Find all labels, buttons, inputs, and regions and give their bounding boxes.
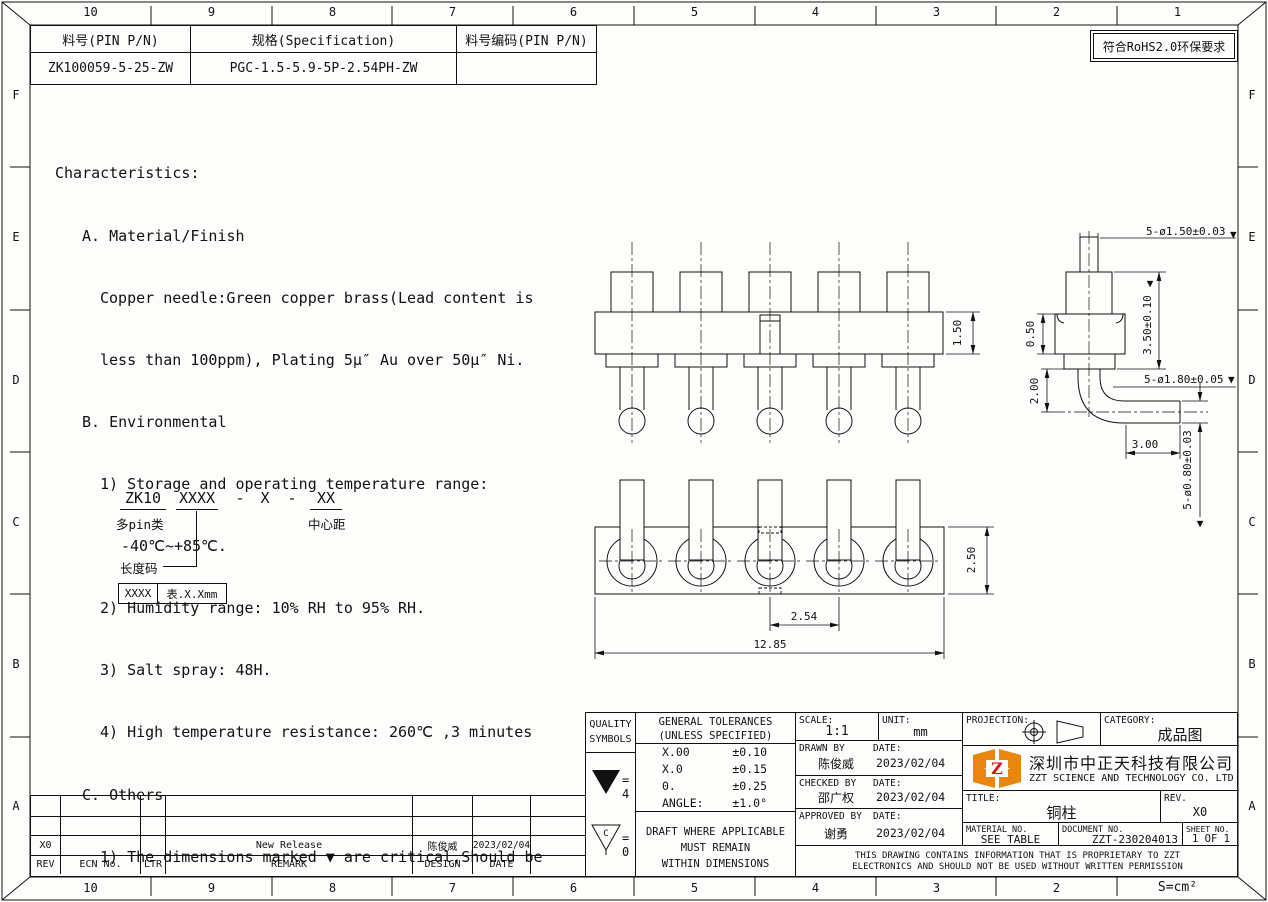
- dim-plan-height: 2.50: [965, 547, 978, 574]
- pn-length-value: 表.X.Xmm: [158, 584, 226, 603]
- pn-dash: -: [286, 489, 298, 509]
- pn-connector-line: [196, 511, 197, 567]
- characteristics-line: less than 100ppm), Plating 5μ″ Au over 5…: [55, 350, 600, 371]
- critical-count: = 4: [622, 773, 635, 801]
- grid-row-label: F: [4, 88, 28, 104]
- drawing-title: 铜柱: [963, 802, 1160, 823]
- scale-cell: SCALE: 1:1: [796, 713, 879, 741]
- rev-header: LTR: [140, 855, 165, 875]
- checked-by-cell: CHECKED BY DATE: 邵广权 2023/02/04: [796, 776, 963, 809]
- rev-value: X0: [1161, 805, 1239, 819]
- material-value: SEE TABLE: [963, 833, 1058, 846]
- dim-pin-diameter: 5-ø1.50±0.03: [1146, 225, 1225, 238]
- pn-length-code: XXXX: [176, 489, 218, 510]
- critical-triangle-icon: [591, 769, 621, 795]
- svg-text:Z: Z: [991, 759, 1003, 778]
- company-logo-icon: Z: [971, 748, 1023, 789]
- rev-header: DATE: [472, 855, 530, 875]
- dim-shoulder-diameter: 5-ø1.80±0.05: [1144, 373, 1223, 386]
- dim-body-height: 3.50±0.10: [1141, 295, 1154, 355]
- pn-dash: -: [234, 489, 246, 509]
- pn-suffix-label: 中心距: [308, 514, 346, 533]
- dim-bar-height: 1.50: [951, 320, 964, 347]
- pn-value: ZK100059-5-25-ZW: [31, 52, 190, 84]
- pn-length-key: XXXX: [119, 584, 158, 603]
- dim-plan-total: 12.85: [753, 638, 786, 651]
- grid-col-label: 1: [1117, 5, 1238, 21]
- title-cell: TITLE: 铜柱: [963, 791, 1161, 823]
- pn-length-label: 长度码: [120, 558, 158, 577]
- tolerances-header: GENERAL TOLERANCES (UNLESS SPECIFIED): [636, 713, 796, 744]
- grid-col-label: 6: [513, 5, 634, 21]
- projection-symbol-icon: [1021, 719, 1091, 745]
- sheet-area-label: S=cm²: [1117, 880, 1238, 896]
- grid-col-label: 5: [634, 881, 755, 897]
- document-cell: DOCUMENT NO. ZZT-230204013: [1059, 823, 1183, 846]
- pn-mid: X: [258, 489, 272, 509]
- rev-header: REV: [31, 855, 60, 875]
- approved-by-cell: APPROVED BY DATE: 谢勇 2023/02/04: [796, 809, 963, 846]
- spec-value: PGC-1.5-5.9-5P-2.54PH-ZW: [190, 52, 456, 84]
- characteristics-line: B. Environmental: [55, 412, 600, 433]
- tolerances-table: X.00±0.10 X.0±0.15 0.±0.25 ANGLE:±1.0°: [636, 744, 796, 812]
- code-header: 料号编码(PIN P/N): [456, 26, 596, 52]
- unit-cell: UNIT: mm: [879, 713, 963, 741]
- grid-col-label: 5: [634, 5, 755, 21]
- pn-connector-line: [163, 566, 197, 567]
- grid-col-label: 3: [876, 5, 997, 21]
- company-name-en: ZZT SCIENCE AND TECHNOLOGY CO. LTD: [1029, 773, 1234, 784]
- revision-table: X0 New Release 陈俊威 2023/02/04 REV ECN No…: [30, 795, 586, 877]
- grid-col-label: 4: [755, 5, 876, 21]
- front-view: 1.50: [595, 242, 980, 443]
- plan-view: 2.50 2.54 12.85: [595, 480, 994, 659]
- pn-prefix: ZK10: [120, 489, 166, 510]
- quality-symbols-body: = 4 C = 0: [586, 753, 636, 876]
- characteristics-block: Characteristics: A. Material/Finish Copp…: [55, 122, 600, 902]
- projection-cell: PROJECTION:: [963, 713, 1101, 746]
- characteristics-line: Characteristics:: [55, 163, 600, 184]
- sheet-cell: SHEET NO. 1 OF 1: [1183, 823, 1239, 846]
- c-triangle-icon: C: [590, 823, 622, 855]
- grid-col-label: 2: [996, 881, 1117, 897]
- rev-header: ECN No.: [60, 855, 140, 875]
- material-cell: MATERIAL NO. SEE TABLE: [963, 823, 1059, 846]
- characteristics-line: A. Material/Finish: [55, 226, 600, 247]
- grid-col-label: 8: [272, 5, 393, 21]
- grid-col-label: 4: [755, 881, 876, 897]
- rev-header: DESIGN: [412, 855, 472, 875]
- pn-suffix: XX: [310, 489, 342, 510]
- characteristics-line: -40℃~+85℃.: [55, 536, 600, 557]
- critical-mark: ▼: [1147, 277, 1154, 290]
- side-view: 5-ø1.50±0.03 ▼ 3.50±0.10 ▼ 0.50 2.00 5-ø…: [1024, 225, 1237, 530]
- dim-leg-length: 3.00: [1132, 438, 1159, 451]
- characteristics-line: Copper needle:Green copper brass(Lead co…: [55, 288, 600, 309]
- characteristics-line: 4) High temperature resistance: 260℃ ,3 …: [55, 722, 600, 743]
- rohs-badge-text: 符合RoHS2.0环保要求: [1093, 33, 1235, 59]
- critical-mark: ▼: [1228, 373, 1235, 386]
- rev-entry-ecn: [60, 835, 140, 855]
- drawing-views: 1.50 2.50 2.54 12.85: [560, 225, 1250, 685]
- document-number: ZZT-230204013: [1092, 833, 1178, 846]
- grid-row-label: E: [4, 230, 28, 246]
- pn-length-table: XXXX 表.X.Xmm: [118, 583, 227, 604]
- svg-text:C: C: [603, 829, 608, 839]
- grid-col-label: 9: [151, 5, 272, 21]
- grid-row-label: D: [4, 373, 28, 389]
- grid-col-label: 7: [392, 5, 513, 21]
- dim-below: 2.00: [1028, 378, 1041, 405]
- dim-plan-pitch: 2.54: [791, 610, 818, 623]
- engineering-drawing-sheet: 10 9 8 7 6 5 4 3 2 1 10 9 8 7 6 5 4 3 2 …: [0, 0, 1268, 902]
- characteristics-line: 3) Salt spray: 48H.: [55, 660, 600, 681]
- rev-header: REMARK: [165, 855, 412, 875]
- part-info-table: 料号(PIN P/N) 规格(Specification) 料号编码(PIN P…: [30, 25, 597, 85]
- sheet-value: 1 OF 1: [1183, 833, 1239, 845]
- rev-cell: REV. X0: [1161, 791, 1239, 823]
- category-value: 成品图: [1111, 724, 1239, 745]
- quality-symbols-header: QUALITY SYMBOLS: [586, 713, 636, 753]
- category-cell: CATEGORY: 成品图: [1101, 713, 1239, 746]
- rev-entry-design: 陈俊威: [412, 835, 472, 855]
- pn-prefix-label: 多pin类: [116, 514, 164, 533]
- grid-col-label: 3: [876, 881, 997, 897]
- rohs-badge: 符合RoHS2.0环保要求: [1090, 30, 1238, 62]
- grid-row-label: A: [1240, 799, 1264, 815]
- c-count: = 0: [622, 831, 635, 859]
- rev-entry-remark: New Release: [165, 835, 412, 855]
- drawn-by-cell: DRAWN BY DATE: 陈俊威 2023/02/04: [796, 741, 963, 776]
- grid-row-label: A: [4, 799, 28, 815]
- company-name-cn: 深圳市中正天科技有限公司: [1029, 750, 1233, 774]
- spec-header: 规格(Specification): [190, 26, 456, 52]
- title-block: QUALITY SYMBOLS = 4 C = 0 GENERAL TOLERA…: [585, 712, 1238, 877]
- grid-col-label: 10: [30, 5, 151, 21]
- grid-row-label: C: [4, 515, 28, 531]
- proprietary-notice: THIS DRAWING CONTAINS INFORMATION THAT I…: [796, 846, 1239, 876]
- pn-header: 料号(PIN P/N): [31, 26, 190, 52]
- critical-mark: ▼: [1230, 228, 1237, 241]
- grid-row-label: B: [4, 657, 28, 673]
- draft-note: DRAFT WHERE APPLICABLE MUST REMAIN WITHI…: [636, 812, 796, 876]
- rev-entry-ltr: [140, 835, 165, 855]
- grid-col-label: 2: [996, 5, 1117, 21]
- rev-entry-rev: X0: [31, 835, 60, 855]
- code-value: [456, 52, 596, 84]
- company-cell: Z 深圳市中正天科技有限公司 ZZT SCIENCE AND TECHNOLOG…: [963, 746, 1239, 791]
- critical-mark: ▼: [1197, 517, 1204, 530]
- rev-entry-date: 2023/02/04: [472, 835, 530, 855]
- scale-value: 1:1: [796, 724, 878, 739]
- dim-wire-diameter: 5-ø0.80±0.03: [1181, 430, 1194, 509]
- dim-collar: 0.50: [1024, 321, 1037, 348]
- unit-value: mm: [879, 725, 962, 739]
- grid-row-label: F: [1240, 88, 1264, 104]
